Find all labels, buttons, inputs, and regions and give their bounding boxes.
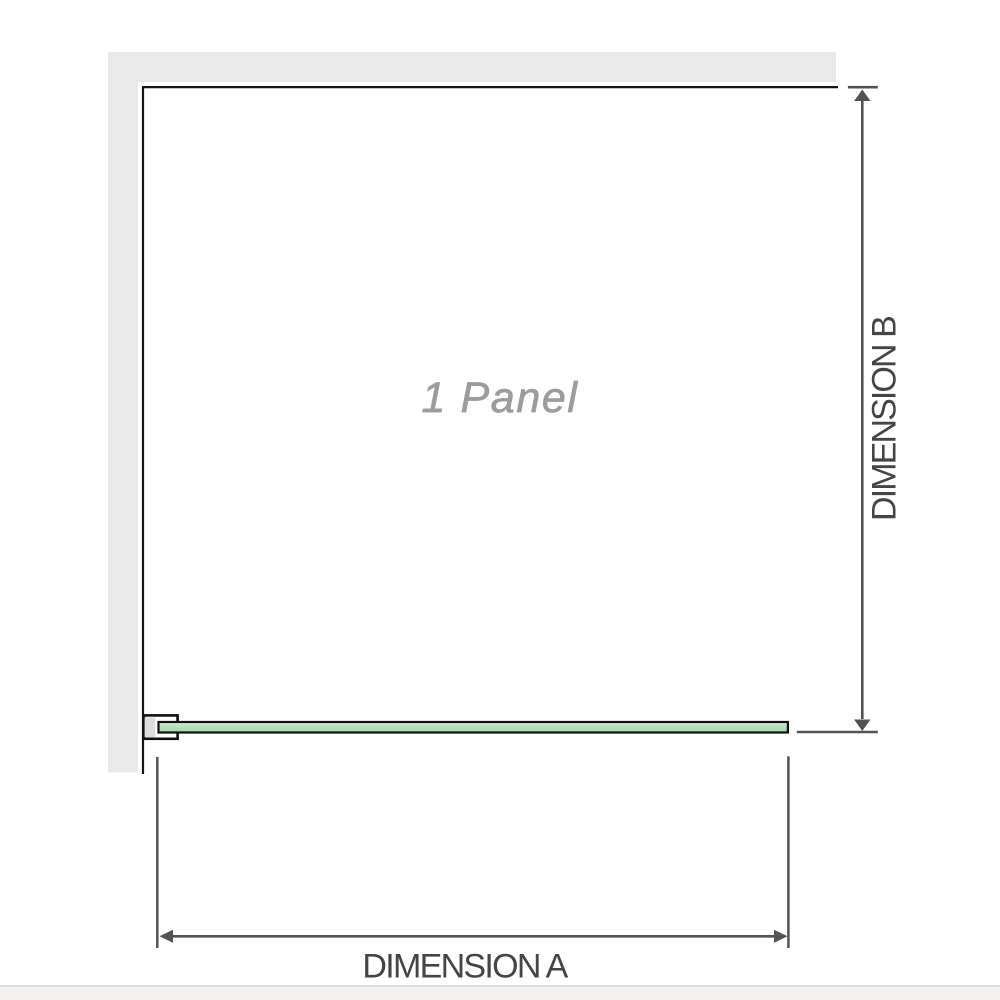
svg-text:1 Panel: 1 Panel: [421, 374, 578, 422]
svg-text:DIMENSION A: DIMENSION A: [362, 948, 568, 986]
svg-text:DIMENSION B: DIMENSION B: [866, 317, 904, 521]
